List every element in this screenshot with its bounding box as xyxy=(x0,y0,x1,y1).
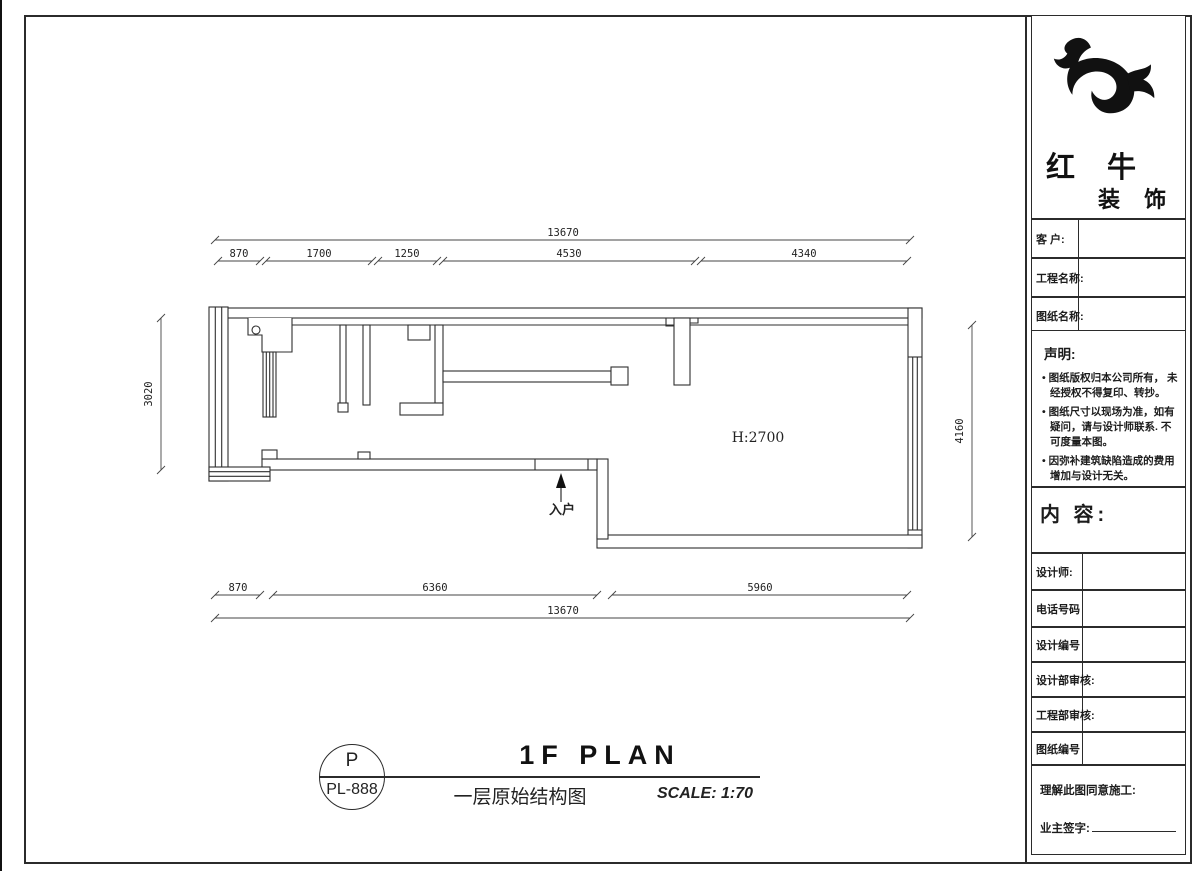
entrance-arrow xyxy=(556,473,566,502)
dim-right: 4160 xyxy=(954,418,966,443)
dim-top-total: 13670 xyxy=(547,227,579,239)
customer-value xyxy=(1079,220,1185,257)
dim-top-seg-3: 1250 xyxy=(394,248,419,260)
step-wall xyxy=(597,459,608,539)
partition-wall-1 xyxy=(340,325,346,403)
dimension-lines xyxy=(157,236,976,622)
row-customer: 客 户: xyxy=(1031,219,1186,258)
drawing-scale: SCALE: 1:70 xyxy=(625,785,785,803)
sheet-no-label: 图纸编号 xyxy=(1032,733,1083,764)
engineering-review-value xyxy=(1083,698,1185,731)
dim-top-seg-1: 870 xyxy=(230,248,249,260)
consent-label: 理解此图同意施工: xyxy=(1040,782,1185,798)
logo-box: 红 牛 装 饰 xyxy=(1031,15,1186,219)
beam-end-box xyxy=(611,367,628,385)
project-name-value xyxy=(1079,259,1185,296)
bottom-left-wall xyxy=(262,459,597,470)
signature-text: 业主签字: xyxy=(1040,823,1090,835)
phone-value xyxy=(1083,591,1185,626)
customer-label: 客 户: xyxy=(1032,220,1079,257)
row-design-no: 设计编号 xyxy=(1031,627,1186,662)
drawing-title-en: 1F PLAN xyxy=(440,740,760,771)
dimension-labels: 13670 870 1700 1250 4530 4340 870 6360 5… xyxy=(143,227,966,617)
approval-box: 理解此图同意施工: 业主签字: xyxy=(1031,765,1186,855)
designer-label: 设计师: xyxy=(1032,554,1083,589)
dim-left: 3020 xyxy=(143,381,155,406)
bottom-right-wall xyxy=(597,535,922,548)
blueprint-sheet: { "brand": { "title": "红 牛", "subtitle":… xyxy=(0,0,1200,871)
dim-bottom-seg-3: 5960 xyxy=(747,582,772,594)
statement-item: 图纸版权归本公司所有， 未经授权不得复印、转抄。 xyxy=(1050,371,1179,400)
signature-label: 业主签字: xyxy=(1040,820,1185,836)
row-design-review: 设计部审核: xyxy=(1031,662,1186,697)
signature-line xyxy=(1092,820,1176,832)
row-phone: 电话号码 xyxy=(1031,590,1186,627)
project-name-label: 工程名称: xyxy=(1032,259,1079,296)
top-wall xyxy=(210,308,922,318)
dim-bottom-total: 13670 xyxy=(547,605,579,617)
content-box: 内 容: xyxy=(1031,487,1186,553)
dim-bottom-seg-1: 870 xyxy=(229,582,248,594)
statement-box: 声明: 图纸版权归本公司所有， 未经授权不得复印、转抄。 图纸尺寸以现场为准，如… xyxy=(1031,330,1186,487)
drawing-name-value xyxy=(1079,298,1185,334)
design-no-value xyxy=(1083,628,1185,661)
statement-item: 图纸尺寸以现场为准，如有 疑问，请与设计师联系. 不可度量本图。 xyxy=(1050,405,1179,449)
phone-label: 电话号码 xyxy=(1032,591,1083,626)
statement-item: 因弥补建筑缺陷造成的费用 增加与设计无关。 xyxy=(1050,454,1179,483)
design-review-label: 设计部审核: xyxy=(1032,663,1083,696)
pier xyxy=(674,318,690,385)
design-no-label: 设计编号 xyxy=(1032,628,1083,661)
row-project-name: 工程名称: xyxy=(1031,258,1186,297)
content-label: 内 容: xyxy=(1040,498,1185,527)
bubble-letter: P xyxy=(319,750,385,772)
drawing-title-cn: 一层原始结构图 xyxy=(420,782,620,809)
beam xyxy=(443,371,611,382)
entrance-label: 入户 xyxy=(549,502,575,517)
dim-top-seg-2: 1700 xyxy=(306,248,331,260)
brand-name: 红 牛 xyxy=(1046,144,1148,186)
title-rule xyxy=(319,776,760,778)
drawing-name-label: 图纸名称: xyxy=(1032,298,1079,334)
row-designer: 设计师: xyxy=(1031,553,1186,590)
right-wall xyxy=(908,308,922,548)
bubble-code: PL-888 xyxy=(317,781,387,799)
statement-title: 声明: xyxy=(1044,343,1179,363)
row-sheet-no: 图纸编号 xyxy=(1031,732,1186,765)
bull-logo-icon xyxy=(1042,28,1177,143)
engineering-review-label: 工程部审核: xyxy=(1032,698,1083,731)
flue-hatch xyxy=(263,352,276,417)
column-circle xyxy=(252,326,260,334)
wall-protrusion xyxy=(248,318,292,352)
dim-bottom-seg-2: 6360 xyxy=(422,582,447,594)
room-height-label: H:2700 xyxy=(732,430,785,446)
partition-wall-4 xyxy=(400,403,443,415)
sheet-no-value xyxy=(1083,733,1185,764)
flue-box xyxy=(408,325,430,340)
partition-wall-3 xyxy=(435,325,443,403)
dim-top-seg-4: 4530 xyxy=(556,248,581,260)
partition-wall-2 xyxy=(363,325,370,405)
row-engineering-review: 工程部审核: xyxy=(1031,697,1186,732)
brand-tagline: 装 饰 xyxy=(1098,182,1175,214)
dim-top-seg-5: 4340 xyxy=(791,248,816,260)
design-review-value xyxy=(1083,663,1185,696)
designer-value xyxy=(1083,554,1185,589)
